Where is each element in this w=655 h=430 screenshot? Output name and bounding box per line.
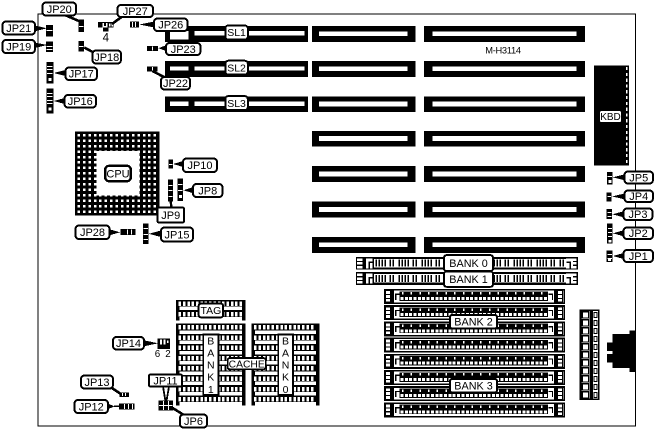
svg-text:CPU: CPU [106, 168, 129, 180]
svg-text:JP20: JP20 [47, 4, 72, 16]
svg-text:JP9: JP9 [161, 210, 180, 222]
svg-text:JP4: JP4 [629, 191, 648, 203]
svg-text:SL2: SL2 [227, 62, 246, 74]
svg-text:TAG: TAG [200, 305, 221, 317]
svg-text:JP22: JP22 [163, 78, 188, 90]
svg-text:JP8: JP8 [198, 185, 217, 197]
svg-text:B: B [207, 335, 214, 347]
svg-text:SL3: SL3 [227, 98, 246, 110]
svg-text:JP26: JP26 [158, 20, 183, 32]
svg-text:CACHE: CACHE [229, 359, 265, 370]
svg-text:BANK 0: BANK 0 [449, 258, 487, 270]
svg-text:JP12: JP12 [79, 401, 104, 413]
svg-text:JP23: JP23 [171, 44, 196, 56]
svg-text:K: K [207, 372, 214, 384]
svg-text:BANK 1: BANK 1 [449, 274, 487, 286]
svg-text:6: 6 [155, 349, 161, 360]
svg-text:JP17: JP17 [69, 69, 94, 81]
svg-text:JP18: JP18 [94, 52, 119, 64]
svg-text:2: 2 [165, 349, 170, 360]
svg-text:JP27: JP27 [123, 6, 148, 18]
svg-text:JP15: JP15 [164, 229, 189, 241]
svg-text:JP10: JP10 [187, 160, 212, 172]
svg-text:A: A [282, 347, 289, 359]
svg-text:N: N [207, 360, 215, 372]
svg-text:BANK 3: BANK 3 [454, 380, 492, 392]
svg-text:M-H3114: M-H3114 [485, 46, 521, 56]
svg-text:N: N [282, 360, 290, 372]
svg-text:JP21: JP21 [6, 23, 31, 35]
svg-text:KBD: KBD [600, 112, 621, 123]
svg-text:JP28: JP28 [80, 227, 105, 239]
svg-text:JP19: JP19 [6, 41, 31, 53]
svg-text:A: A [207, 347, 214, 359]
svg-text:K: K [282, 372, 289, 384]
svg-text:1: 1 [208, 384, 214, 396]
svg-text:4: 4 [103, 33, 110, 45]
svg-text:JP2: JP2 [629, 228, 648, 240]
svg-text:BANK 2: BANK 2 [454, 316, 492, 328]
svg-text:JP14: JP14 [116, 338, 141, 350]
svg-text:JP1: JP1 [629, 251, 648, 263]
svg-text:JP5: JP5 [629, 172, 648, 184]
svg-text:B: B [282, 335, 289, 347]
svg-text:JP11: JP11 [153, 375, 177, 387]
svg-text:JP13: JP13 [84, 377, 109, 389]
svg-text:JP16: JP16 [68, 96, 93, 108]
svg-text:JP3: JP3 [629, 209, 648, 221]
svg-text:JP6: JP6 [184, 416, 203, 428]
svg-text:0: 0 [283, 384, 289, 396]
svg-text:SL1: SL1 [227, 27, 246, 39]
